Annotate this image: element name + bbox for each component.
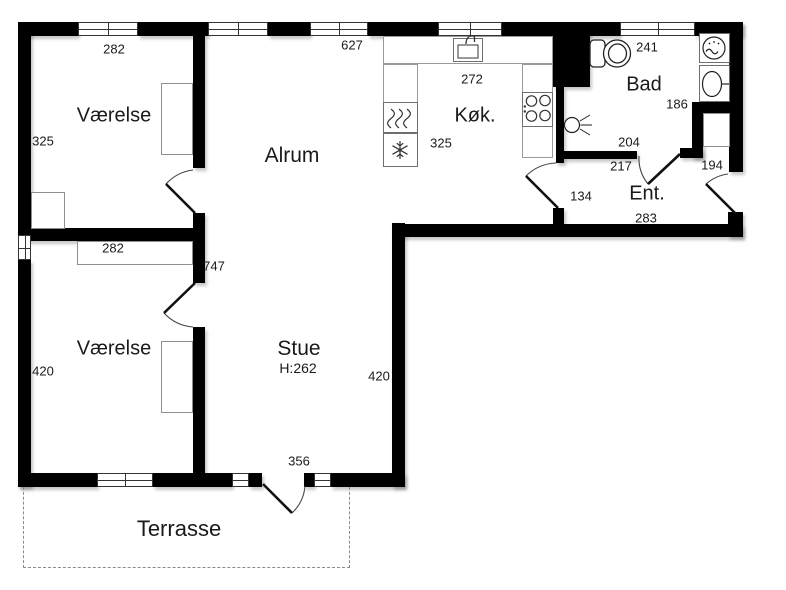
room-label-terrasse: Terrasse: [137, 516, 221, 542]
window: [78, 22, 138, 36]
dimension-label: 194: [701, 158, 723, 173]
wall-bad-niche-h: [692, 102, 730, 113]
room-label-bad: Bad: [626, 74, 662, 97]
wall-bottom-segment: [304, 473, 314, 487]
window: [18, 235, 31, 260]
dimension-label: 134: [570, 189, 592, 204]
window: [232, 473, 249, 487]
ceiling-height-note: H:262: [279, 360, 316, 376]
door-swing: [639, 154, 680, 184]
dimension-label: 420: [368, 369, 390, 384]
dimension-label: 325: [430, 136, 452, 151]
room-label-vaerelse2: Værelse: [77, 338, 151, 361]
room-label-ent: Ent.: [629, 183, 665, 206]
shower-icon: [699, 33, 730, 63]
dimension-label: 282: [102, 241, 124, 256]
window: [97, 473, 153, 487]
stove-icon: [522, 92, 553, 127]
door-swing: [166, 170, 195, 213]
room-label-alrum: Alrum: [265, 144, 320, 168]
ent-cabinet: [703, 113, 730, 147]
room-label-vaerelse1: Værelse: [77, 105, 151, 128]
wall-lamp-icon: [565, 115, 593, 135]
wall-top-segment: [268, 22, 310, 36]
window: [208, 22, 268, 36]
wardrobe: [161, 83, 193, 155]
window: [438, 22, 502, 36]
dimension-label: 420: [32, 364, 54, 379]
room-label-stue: Stue: [277, 337, 320, 361]
dimension-label: 283: [635, 211, 657, 226]
closet: [31, 192, 65, 229]
room-label-kok: Køk.: [454, 105, 495, 128]
wall-top-segment: [368, 22, 438, 36]
wall-vaerelse1-alrum-stub: [193, 213, 205, 228]
closet: [77, 241, 193, 265]
dimension-label: 747: [203, 259, 225, 274]
window: [310, 22, 368, 36]
door-swing: [706, 174, 736, 214]
dimension-label: 356: [288, 454, 310, 469]
wall-ent-stub: [553, 208, 564, 224]
floor-plan: Værelse Alrum Køk. Bad Ent. Værelse Stue…: [0, 0, 786, 590]
window: [620, 22, 695, 36]
wall-vaerelse1-alrum: [193, 36, 205, 168]
window: [314, 473, 331, 487]
wall-left-segment: [18, 22, 31, 235]
dimension-label: 204: [618, 135, 640, 150]
washbasin-icon: [699, 65, 730, 102]
door-swing: [526, 163, 558, 208]
wall-vaerelse2-stue: [193, 327, 205, 473]
wall-bottom-segment: [153, 473, 232, 487]
wall-kok-bad-block: [553, 22, 590, 87]
dimension-label: 217: [610, 159, 632, 174]
wardrobe: [161, 341, 193, 413]
door-swing: [164, 283, 195, 327]
dimension-label: 272: [461, 72, 483, 87]
wall-bottom-segment: [18, 473, 97, 487]
wall-stue-right: [392, 223, 405, 487]
dimension-label: 241: [636, 40, 658, 55]
wall-right-segment: [728, 212, 743, 237]
dimension-label: 186: [666, 97, 688, 112]
wall-left-segment: [18, 260, 31, 487]
wall-upper-bottom: [392, 224, 743, 237]
wall-top-segment: [138, 22, 208, 36]
wall-vaerelse-divider: [18, 228, 205, 241]
dimension-label: 282: [103, 42, 125, 57]
toilet-icon: [590, 40, 631, 67]
dimension-label: 627: [341, 38, 363, 53]
wall-bottom-segment: [249, 473, 262, 487]
oven-icon: [383, 102, 418, 133]
kitchen-sink-icon: [453, 38, 483, 62]
wall-right-segment: [729, 22, 743, 172]
dimension-label: 325: [32, 134, 54, 149]
freezer-icon: [383, 133, 418, 167]
